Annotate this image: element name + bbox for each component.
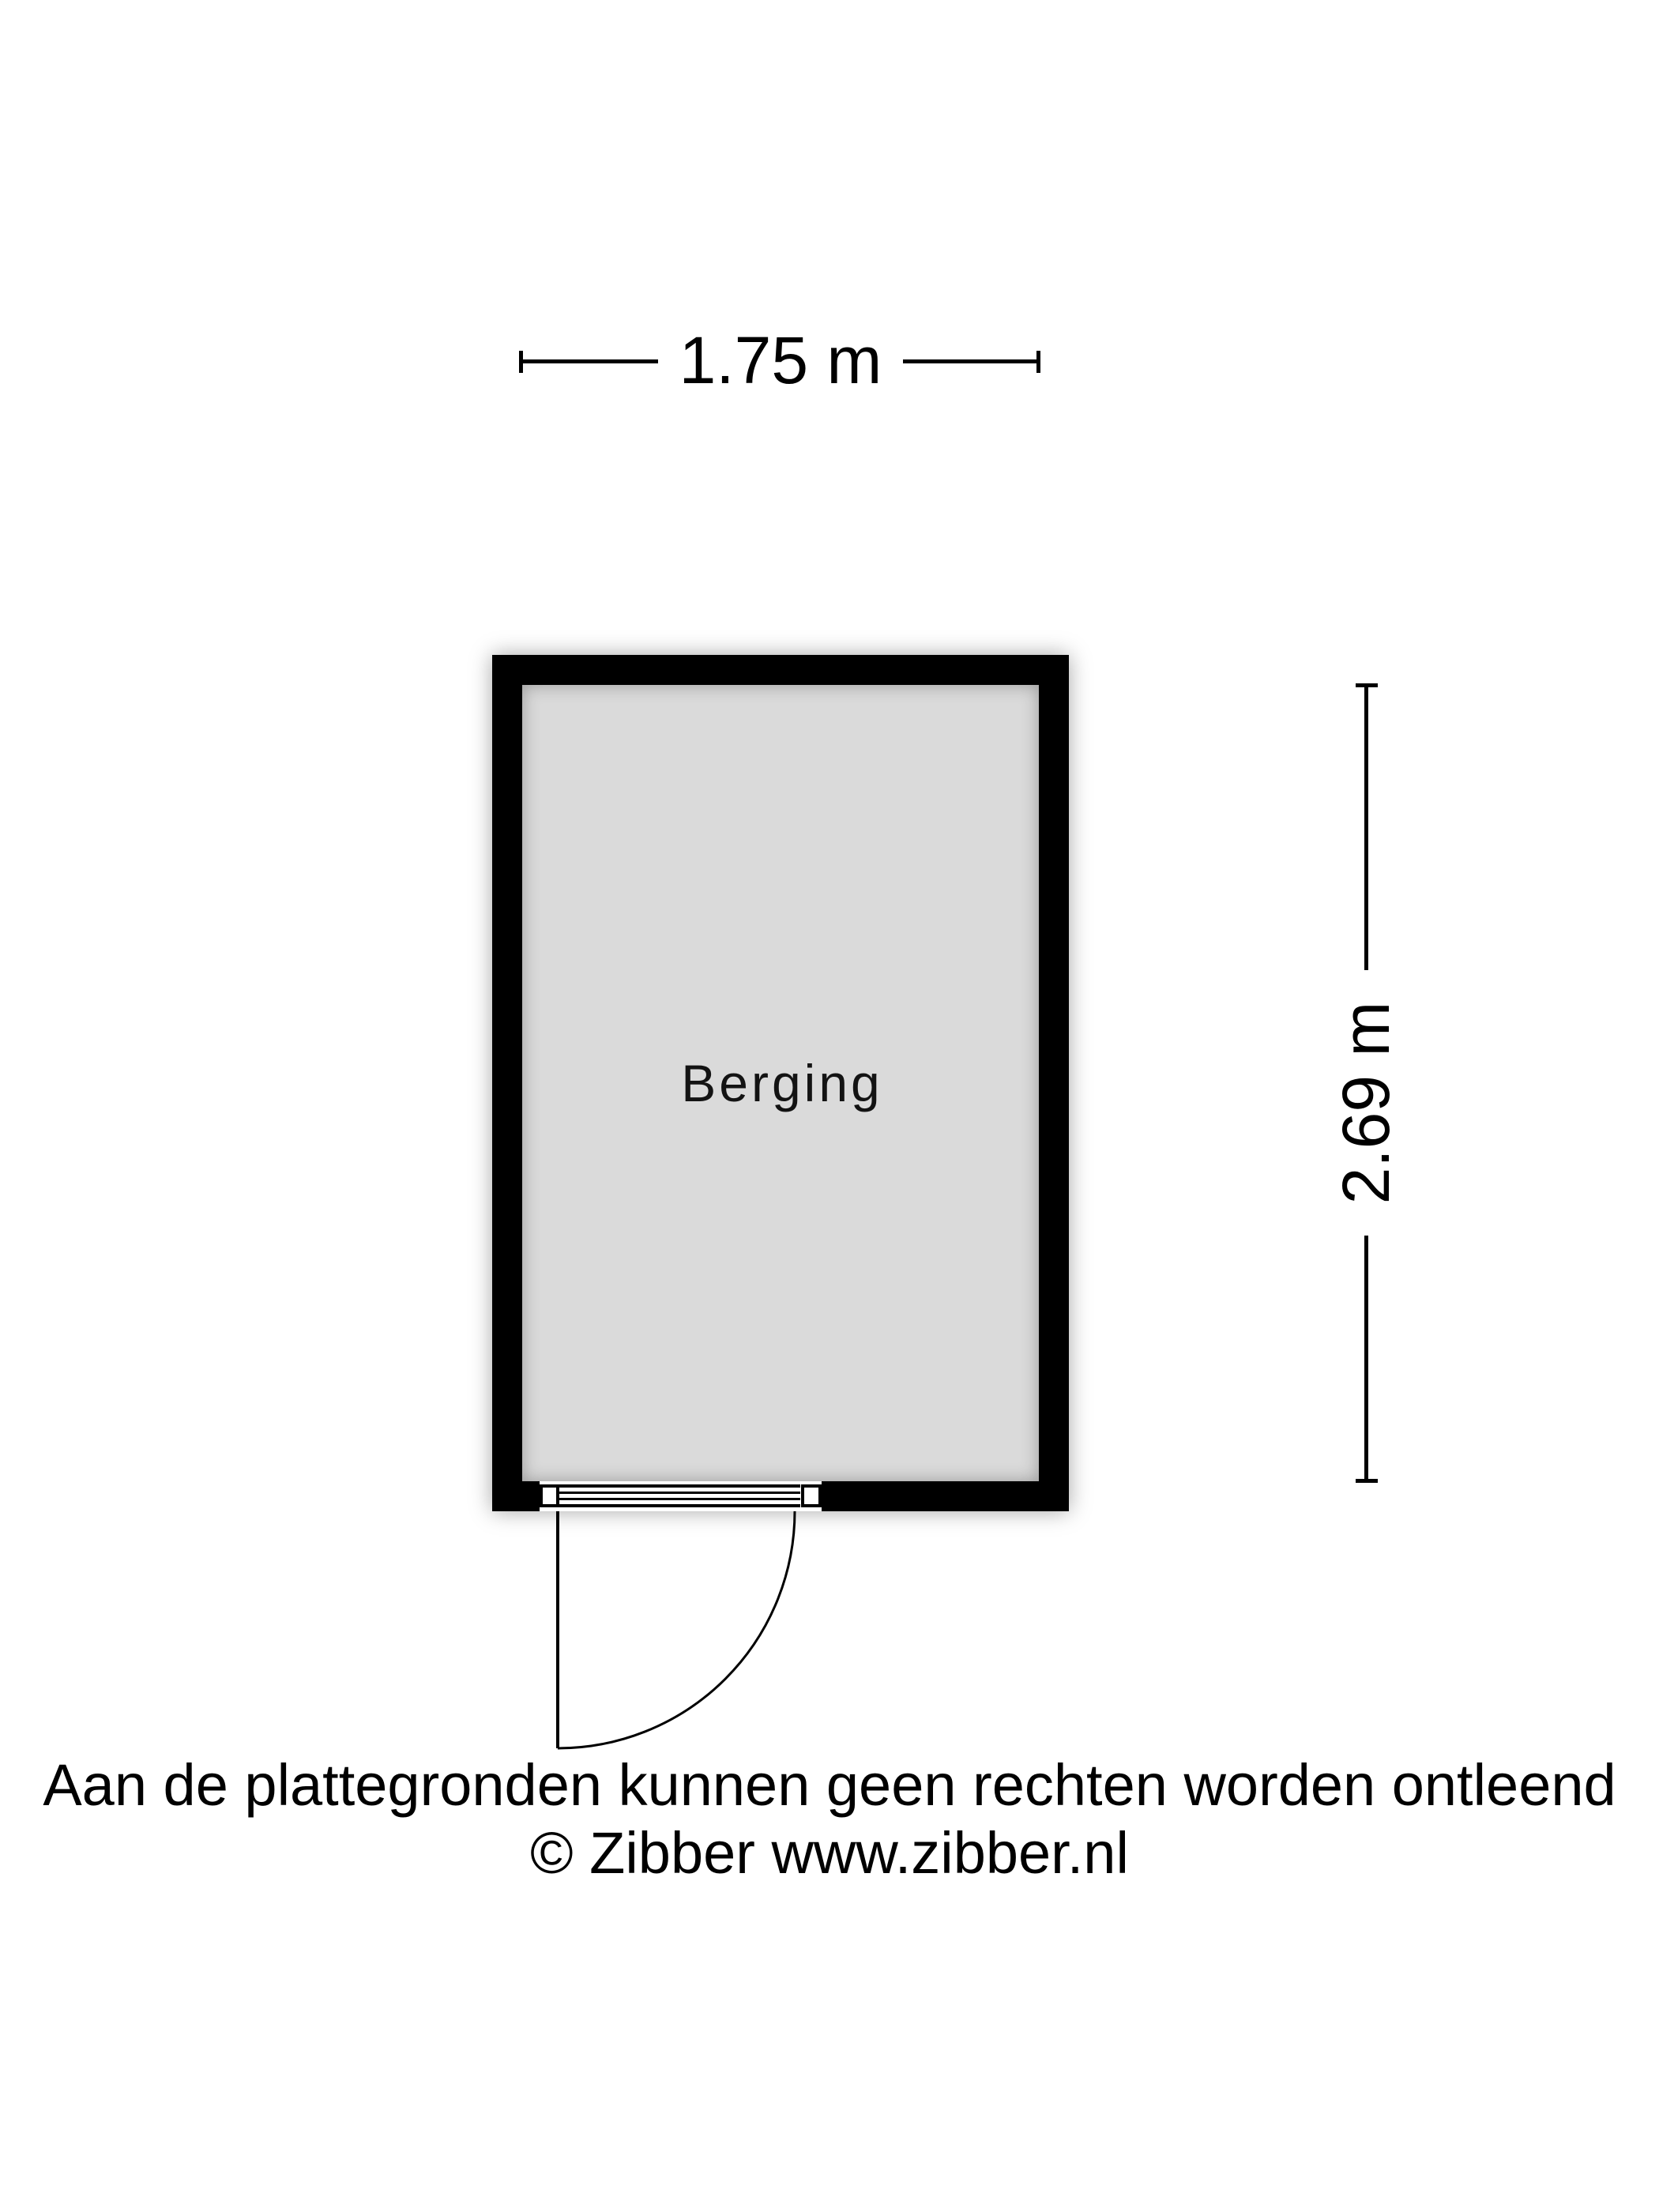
height-dim-line-top [1364,686,1368,970]
room-label: Berging [678,1053,883,1113]
disclaimer-text: Aan de plattegronden kunnen geen rechten… [0,1751,1659,1819]
height-dim-line-bottom [1364,1236,1368,1481]
height-dim-label: 2.69 m [1330,945,1402,1261]
floorplan-canvas: 1.75 m Berging 2.69 m Aan de plattegrond… [0,0,1659,2212]
width-dim-tick-right [1036,351,1040,373]
width-dim-label: 1.75 m [623,324,939,397]
height-dim-tick-top [1356,683,1378,687]
room-interior: Berging [522,685,1039,1481]
footer: Aan de plattegronden kunnen geen rechten… [0,1751,1659,1887]
copyright-text: © Zibber www.zibber.nl [0,1819,1659,1887]
door-swing-arc-icon [550,1503,811,1764]
width-dim-tick-left [519,351,523,373]
height-dim-tick-bottom [1356,1479,1378,1483]
